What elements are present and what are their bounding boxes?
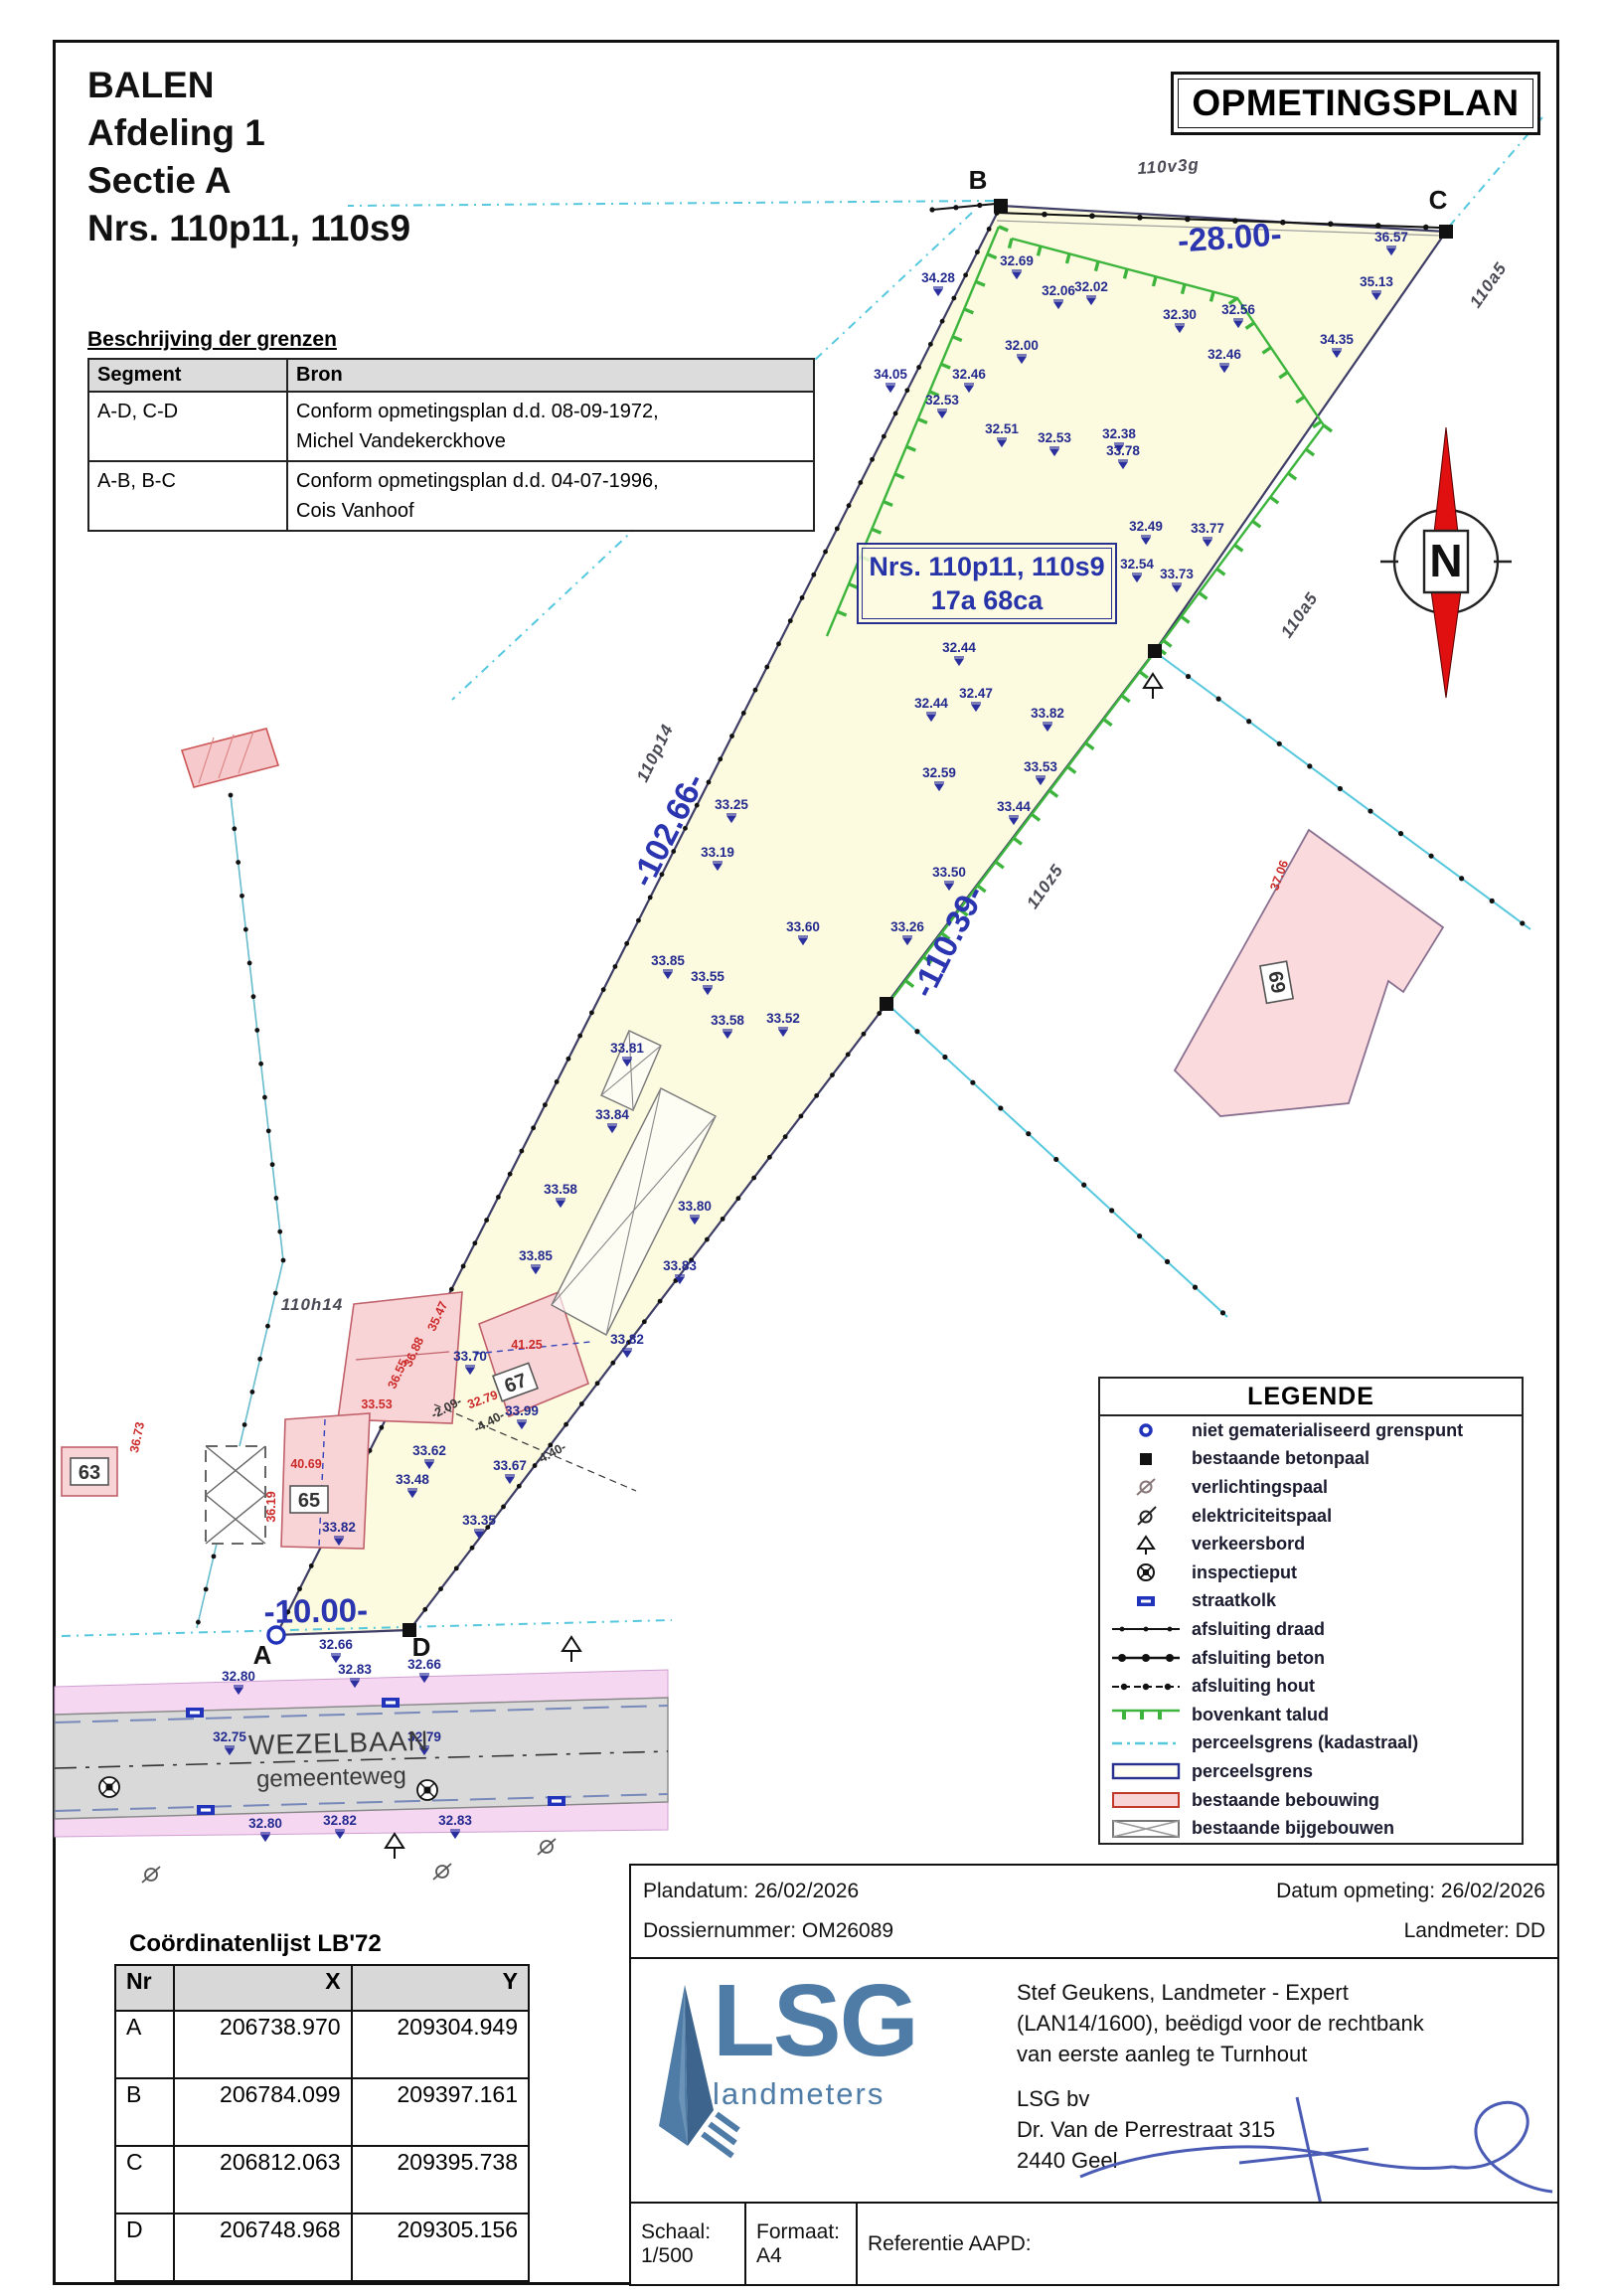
titleblock-scale: Schaal: 1/500 Formaat: A4 Referentie AAP… [629, 2202, 1559, 2286]
section: Sectie A [87, 160, 232, 201]
table-row: C206812.063209395.738 [115, 2146, 529, 2214]
table-cell: Conform opmetingsplan d.d. 08-09-1972, M… [287, 392, 814, 461]
column-header: Nr [115, 1965, 174, 2011]
table-cell: Conform opmetingsplan d.d. 04-07-1996, C… [287, 461, 814, 531]
column-header: Segment [88, 359, 287, 392]
legend-item: verlichtingspaal [1100, 1473, 1522, 1502]
inspectieput-icon [1100, 1561, 1192, 1583]
legend-item: inspectieput [1100, 1558, 1522, 1587]
verkeersbord-icon [1100, 1534, 1192, 1556]
legend-item: perceelsgrens [1100, 1757, 1522, 1786]
verlichtingspaal-icon [1100, 1476, 1192, 1498]
table-row: A206738.970209304.949 [115, 2011, 529, 2078]
plan-header: BALEN Afdeling 1 Sectie A Nrs. 110p11, 1… [87, 62, 410, 252]
datum-opmeting: Datum opmeting: 26/02/2026 [1276, 1880, 1545, 1903]
legend-title: LEGENDE [1100, 1379, 1522, 1416]
straatkolk-icon [1100, 1590, 1192, 1612]
division: Afdeling 1 [87, 112, 265, 153]
legend-item: niet gematerialiseerd grenspunt [1100, 1416, 1522, 1445]
legend-item: bestaande betonpaal [1100, 1445, 1522, 1474]
talud-icon [1100, 1704, 1192, 1725]
road-type: gemeenteweg [256, 1762, 406, 1794]
legend-item: afsluiting draad [1100, 1615, 1522, 1644]
plandatum: Plandatum: 26/02/2026 [643, 1880, 859, 1903]
table-row: A-D, C-DConform opmetingsplan d.d. 08-09… [88, 392, 814, 461]
legend-item-label: inspectieput [1192, 1562, 1297, 1583]
table-row: D206748.968209305.156 [115, 2214, 529, 2281]
legend-item: bestaande bebouwing [1100, 1786, 1522, 1815]
landmeter: Landmeter: DD [1404, 1919, 1545, 1943]
legend-item: bestaande bijgebouwen [1100, 1814, 1522, 1843]
table-cell: D [115, 2214, 174, 2281]
legend-item: straatkolk [1100, 1587, 1522, 1616]
perceelsgrens-icon [1100, 1760, 1192, 1782]
titleblock-surveyor: LSG landmeters Stef Geukens, Landmeter -… [629, 1957, 1559, 2209]
afsluiting-hout-icon [1100, 1676, 1192, 1698]
parcel-label-box: Nrs. 110p11, 110s9 17a 68ca [857, 543, 1117, 624]
legend-item-label: afsluiting draad [1192, 1619, 1325, 1640]
legend-item: bovenkant talud [1100, 1701, 1522, 1729]
signature [1060, 2067, 1557, 2207]
table-cell: 209395.738 [352, 2146, 529, 2214]
bebouwing-icon [1100, 1789, 1192, 1811]
grenspunt-icon [1100, 1419, 1192, 1441]
municipality: BALEN [87, 65, 214, 105]
legend-item-label: perceelsgrens [1192, 1761, 1313, 1782]
table-row: A-B, B-CConform opmetingsplan d.d. 04-07… [88, 461, 814, 531]
table-cell: 206738.970 [174, 2011, 351, 2078]
table-cell: 209397.161 [352, 2078, 529, 2146]
legend-item-label: verkeersbord [1192, 1534, 1305, 1555]
legend-item-label: niet gematerialiseerd grenspunt [1192, 1420, 1463, 1441]
surveyor-line: van eerste aanleg te Turnhout [1017, 2039, 1424, 2069]
column-header: Bron [287, 359, 814, 392]
table-cell: 206812.063 [174, 2146, 351, 2214]
elektriciteitspaal-icon [1100, 1505, 1192, 1527]
legend-item-label: perceelsgrens (kadastraal) [1192, 1732, 1418, 1753]
parcel-numbers: Nrs. 110p11, 110s9 [87, 208, 410, 248]
legend-item-label: elektriciteitspaal [1192, 1506, 1332, 1527]
schaal: Schaal: 1/500 [631, 2204, 746, 2284]
page-title: OPMETINGSPLAN [1171, 72, 1540, 135]
legend-item: afsluiting hout [1100, 1672, 1522, 1701]
bijgebouwen-icon [1100, 1818, 1192, 1840]
legend-item-label: straatkolk [1192, 1590, 1276, 1611]
legend-item: verkeersbord [1100, 1530, 1522, 1558]
lsg-logo-text: LSG landmeters [713, 1967, 917, 2112]
surveyor-line: Stef Geukens, Landmeter - Expert [1017, 1977, 1424, 2008]
coordinates-title: Coördinatenlijst LB'72 [129, 1930, 382, 1958]
betonpaal-icon [1100, 1448, 1192, 1470]
legend-item-label: verlichtingspaal [1192, 1477, 1328, 1498]
column-header: Y [352, 1965, 529, 2011]
table-cell: 209304.949 [352, 2011, 529, 2078]
table-row: B206784.099209397.161 [115, 2078, 529, 2146]
dossiernummer: Dossiernummer: OM26089 [643, 1919, 893, 1943]
table-cell: C [115, 2146, 174, 2214]
logo-sub: landmeters [713, 2076, 917, 2112]
borders-heading: Beschrijving der grenzen [87, 328, 337, 352]
table-cell: A-D, C-D [88, 392, 287, 461]
afsluiting-beton-icon [1100, 1647, 1192, 1669]
road-name: WEZELBAAN [248, 1725, 429, 1761]
column-header: X [174, 1965, 351, 2011]
legend-item-label: bovenkant talud [1192, 1705, 1329, 1725]
table-cell: 206748.968 [174, 2214, 351, 2281]
parcel-label-area: 17a 68ca [931, 583, 1044, 617]
logo-name: LSG [713, 1967, 917, 2074]
perceelsgrens-kad-icon [1100, 1732, 1192, 1754]
table-cell: A [115, 2011, 174, 2078]
afsluiting-draad-icon [1100, 1618, 1192, 1640]
legend-item: elektriciteitspaal [1100, 1502, 1522, 1531]
referentie: Referentie AAPD: [858, 2204, 1557, 2284]
borders-table: SegmentBronA-D, C-DConform opmetingsplan… [87, 358, 815, 532]
formaat: Formaat: A4 [746, 2204, 858, 2284]
surveyor-line: (LAN14/1600), beëdigd voor de rechtbank [1017, 2008, 1424, 2039]
table-cell: B [115, 2078, 174, 2146]
opmetingsplan-page: { "header": { "municipality": "BALEN", "… [0, 0, 1610, 2296]
legend-item: afsluiting beton [1100, 1644, 1522, 1673]
parcel-label-numbers: Nrs. 110p11, 110s9 [869, 550, 1104, 583]
coordinates-table: NrXYA206738.970209304.949B206784.0992093… [114, 1964, 530, 2282]
table-cell: A-B, B-C [88, 461, 287, 531]
legend-item-label: bestaande bebouwing [1192, 1790, 1379, 1811]
legend-item: perceelsgrens (kadastraal) [1100, 1729, 1522, 1758]
legend-item-label: afsluiting beton [1192, 1648, 1325, 1669]
table-cell: 209305.156 [352, 2214, 529, 2281]
legend-item-label: bestaande betonpaal [1192, 1448, 1369, 1469]
titleblock-dates: Plandatum: 26/02/2026 Dossiernummer: OM2… [629, 1864, 1559, 1964]
legend-item-label: afsluiting hout [1192, 1676, 1315, 1697]
table-cell: 206784.099 [174, 2078, 351, 2146]
legend: LEGENDE niet gematerialiseerd grenspuntb… [1098, 1377, 1524, 1845]
legend-item-label: bestaande bijgebouwen [1192, 1818, 1394, 1839]
